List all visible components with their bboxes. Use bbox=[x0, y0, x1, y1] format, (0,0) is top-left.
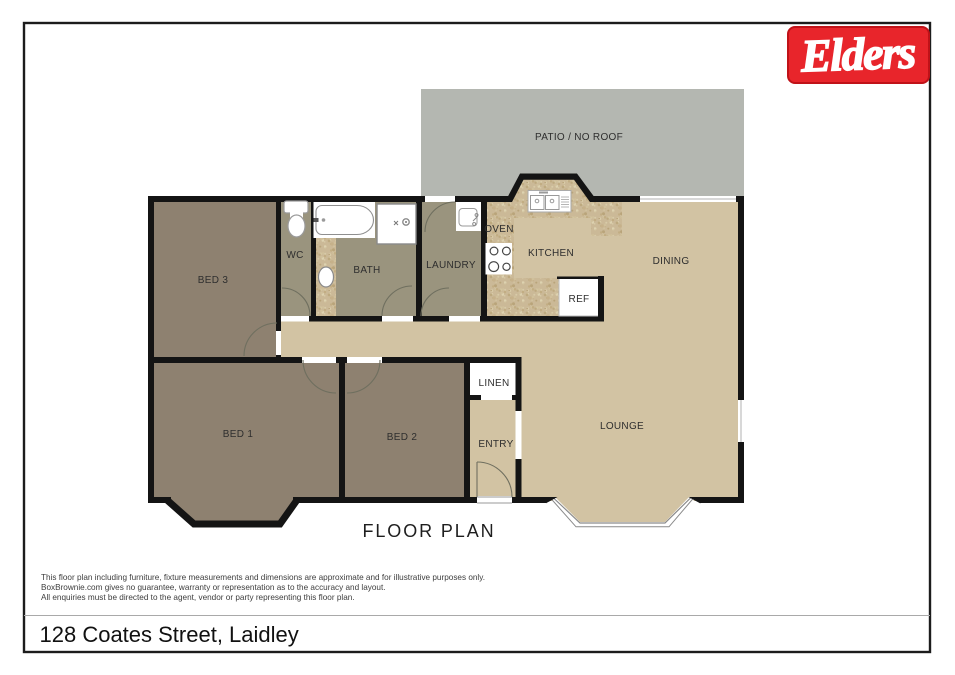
svg-text:KITCHEN: KITCHEN bbox=[528, 248, 574, 259]
svg-text:DINING: DINING bbox=[653, 256, 690, 267]
svg-text:BED 1: BED 1 bbox=[223, 429, 254, 440]
svg-text:FLOOR PLAN: FLOOR PLAN bbox=[362, 521, 495, 541]
svg-text:LAUNDRY: LAUNDRY bbox=[426, 260, 476, 271]
svg-text:128 Coates Street, Laidley: 128 Coates Street, Laidley bbox=[40, 622, 299, 647]
svg-text:This floor plan including furn: This floor plan including furniture, fix… bbox=[41, 573, 485, 582]
svg-text:REF: REF bbox=[569, 294, 590, 305]
svg-text:All enquiries must be directed: All enquiries must be directed to the ag… bbox=[41, 593, 355, 602]
svg-text:WC: WC bbox=[286, 250, 303, 261]
svg-text:BATH: BATH bbox=[353, 265, 380, 276]
svg-text:BED 3: BED 3 bbox=[198, 275, 229, 286]
svg-text:BoxBrownie.com gives no guaran: BoxBrownie.com gives no guarantee, warra… bbox=[41, 583, 386, 592]
svg-text:ENTRY: ENTRY bbox=[478, 439, 513, 450]
svg-text:LINEN: LINEN bbox=[479, 378, 510, 389]
svg-text:Elders: Elders bbox=[799, 27, 916, 82]
svg-text:LOUNGE: LOUNGE bbox=[600, 421, 644, 432]
svg-text:OVEN: OVEN bbox=[484, 224, 514, 235]
svg-text:BED 2: BED 2 bbox=[387, 432, 418, 443]
svg-text:PATIO / NO ROOF: PATIO / NO ROOF bbox=[535, 132, 623, 143]
